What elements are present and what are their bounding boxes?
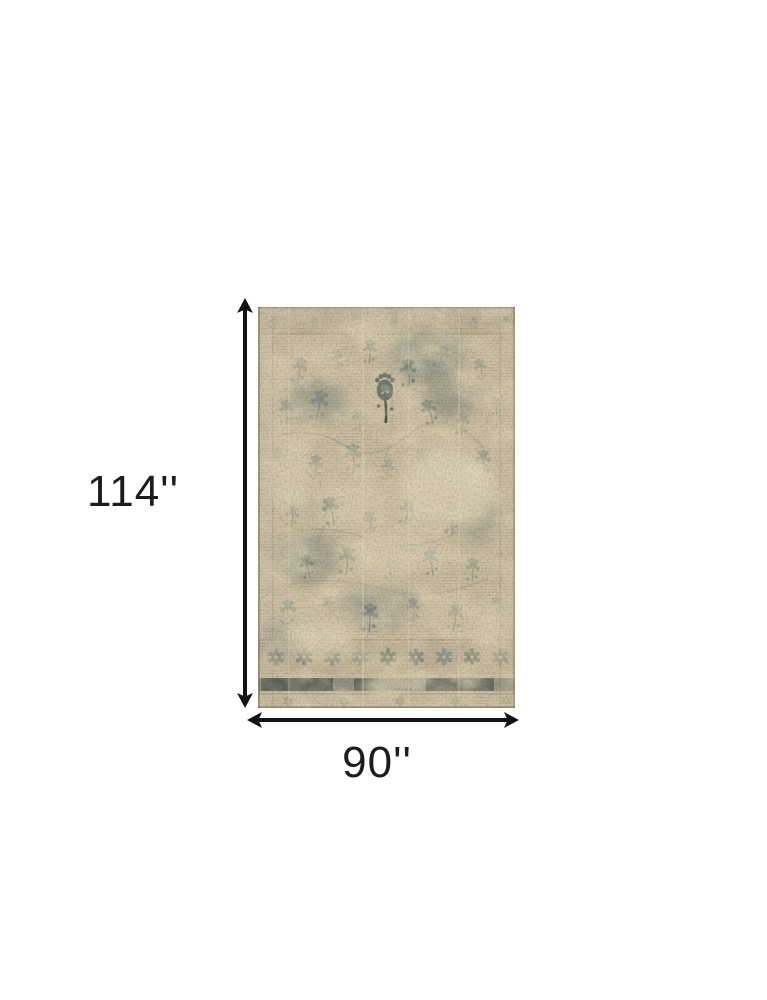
rug-image-svg <box>258 307 515 708</box>
rug-product-image <box>258 307 515 708</box>
width-dimension-label: 90'' <box>342 738 412 788</box>
height-dimension-label: 114'' <box>87 467 179 517</box>
vertical-double-arrow-icon <box>236 298 254 708</box>
horizontal-double-arrow-icon <box>247 711 519 729</box>
dimension-diagram: 114'' <box>0 0 767 1000</box>
rug-distress-overlays <box>258 307 515 708</box>
